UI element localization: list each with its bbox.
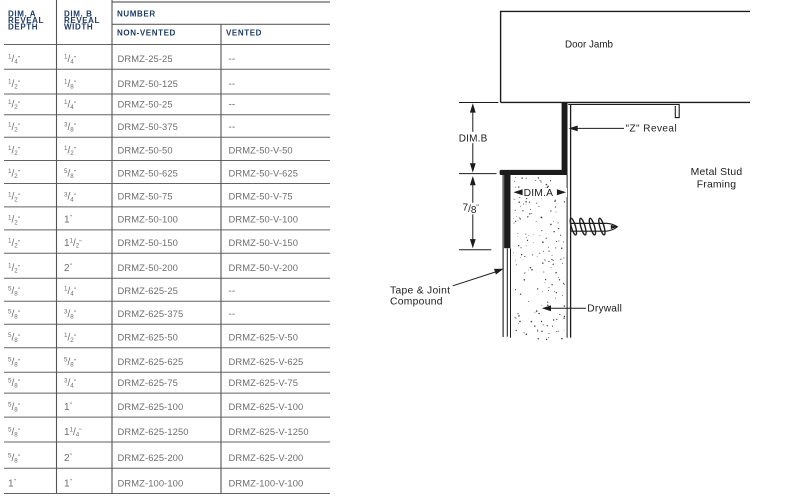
svg-text:Compound: Compound [390,297,443,308]
svg-text:DRMZ-625-V-200: DRMZ-625-V-200 [229,452,304,463]
svg-text:--: -- [229,122,236,133]
svg-text:--: -- [229,309,236,320]
svg-text:DRMZ-100-V-100: DRMZ-100-V-100 [229,477,304,488]
svg-text:DRMZ-625-200: DRMZ-625-200 [118,452,184,463]
svg-text:DRMZ-625-50: DRMZ-625-50 [118,332,179,343]
svg-text:DRMZ-625-375: DRMZ-625-375 [118,308,184,319]
svg-text:DRMZ-50-125: DRMZ-50-125 [118,78,179,89]
svg-text:DRMZ-50-V-100: DRMZ-50-V-100 [229,214,299,225]
svg-text:DRMZ-50-100: DRMZ-50-100 [118,214,179,225]
svg-text:DRMZ-625-75: DRMZ-625-75 [118,377,179,388]
svg-text:DRMZ-50-V-75: DRMZ-50-V-75 [229,191,293,202]
svg-text:DRMZ-50-V-200: DRMZ-50-V-200 [229,262,299,273]
svg-text:DRMZ-25-25: DRMZ-25-25 [118,53,173,64]
svg-text:DRMZ-625-V-1250: DRMZ-625-V-1250 [229,426,309,437]
svg-text:DRMZ-50-V-50: DRMZ-50-V-50 [229,144,293,155]
svg-text:Tape & Joint: Tape & Joint [390,286,450,297]
svg-text:--: -- [229,286,236,297]
svg-text:DRMZ-625-100: DRMZ-625-100 [118,401,184,412]
svg-text:Door Jamb: Door Jamb [565,39,613,50]
svg-text:--: -- [229,100,236,111]
svg-text:Framing: Framing [697,180,737,191]
svg-text:DRMZ-50-625: DRMZ-50-625 [118,167,179,178]
svg-text:Drywall: Drywall [587,304,622,315]
svg-text:--: -- [229,54,236,65]
svg-text:DIM.B: DIM.B [459,133,488,144]
svg-text:DRMZ-50-200: DRMZ-50-200 [118,262,179,273]
svg-text:DRMZ-50-50: DRMZ-50-50 [118,144,173,155]
svg-text:DRMZ-625-625: DRMZ-625-625 [118,356,184,367]
svg-text:DRMZ-50-75: DRMZ-50-75 [118,191,173,202]
svg-text:DRMZ-50-V-150: DRMZ-50-V-150 [229,237,299,248]
svg-text:--: -- [229,79,236,90]
svg-text:Metal Stud: Metal Stud [691,167,743,178]
svg-text:DIM.A: DIM.A [524,188,554,199]
svg-text:WIDTH: WIDTH [64,22,93,31]
svg-text:DRMZ-625-V-50: DRMZ-625-V-50 [229,332,299,343]
svg-text:DRMZ-625-V-625: DRMZ-625-V-625 [229,356,304,367]
svg-text:"Z" Reveal: "Z" Reveal [626,124,678,135]
svg-text:DRMZ-50-V-625: DRMZ-50-V-625 [229,167,299,178]
svg-text:DEPTH: DEPTH [8,22,38,31]
svg-text:DRMZ-100-100: DRMZ-100-100 [118,477,184,488]
svg-text:DRMZ-625-V-100: DRMZ-625-V-100 [229,401,304,412]
svg-text:NON-VENTED: NON-VENTED [117,28,176,37]
svg-text:DRMZ-625-25: DRMZ-625-25 [118,285,179,296]
svg-text:VENTED: VENTED [226,28,262,37]
svg-text:DRMZ-625-V-75: DRMZ-625-V-75 [229,377,299,388]
svg-text:DRMZ-50-25: DRMZ-50-25 [118,99,173,110]
svg-text:DRMZ-50-375: DRMZ-50-375 [118,121,179,132]
svg-text:DRMZ-625-1250: DRMZ-625-1250 [118,426,189,437]
svg-text:NUMBER: NUMBER [117,9,156,18]
svg-text:DRMZ-50-150: DRMZ-50-150 [118,237,179,248]
